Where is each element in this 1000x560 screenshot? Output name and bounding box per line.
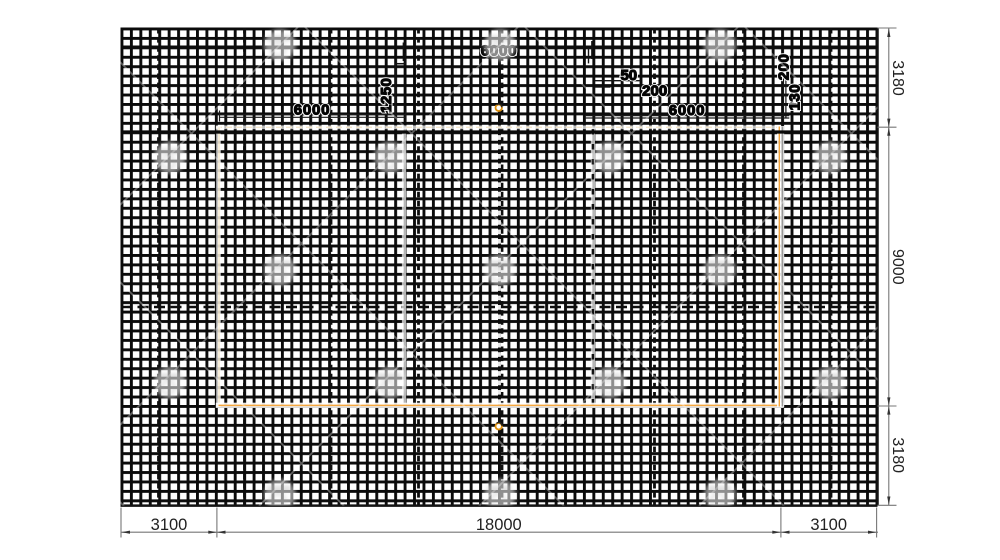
svg-text:3180: 3180 [889, 437, 906, 473]
svg-text:6000: 6000 [669, 102, 706, 119]
svg-text:200: 200 [642, 83, 667, 100]
svg-text:3100: 3100 [151, 516, 188, 534]
svg-text:130: 130 [787, 84, 804, 111]
svg-text:3100: 3100 [810, 516, 847, 534]
svg-text:6000: 6000 [294, 102, 331, 119]
svg-text:3180: 3180 [889, 60, 906, 96]
svg-text:18000: 18000 [476, 516, 522, 534]
svg-text:9000: 9000 [889, 249, 906, 285]
svg-text:50: 50 [620, 67, 637, 84]
